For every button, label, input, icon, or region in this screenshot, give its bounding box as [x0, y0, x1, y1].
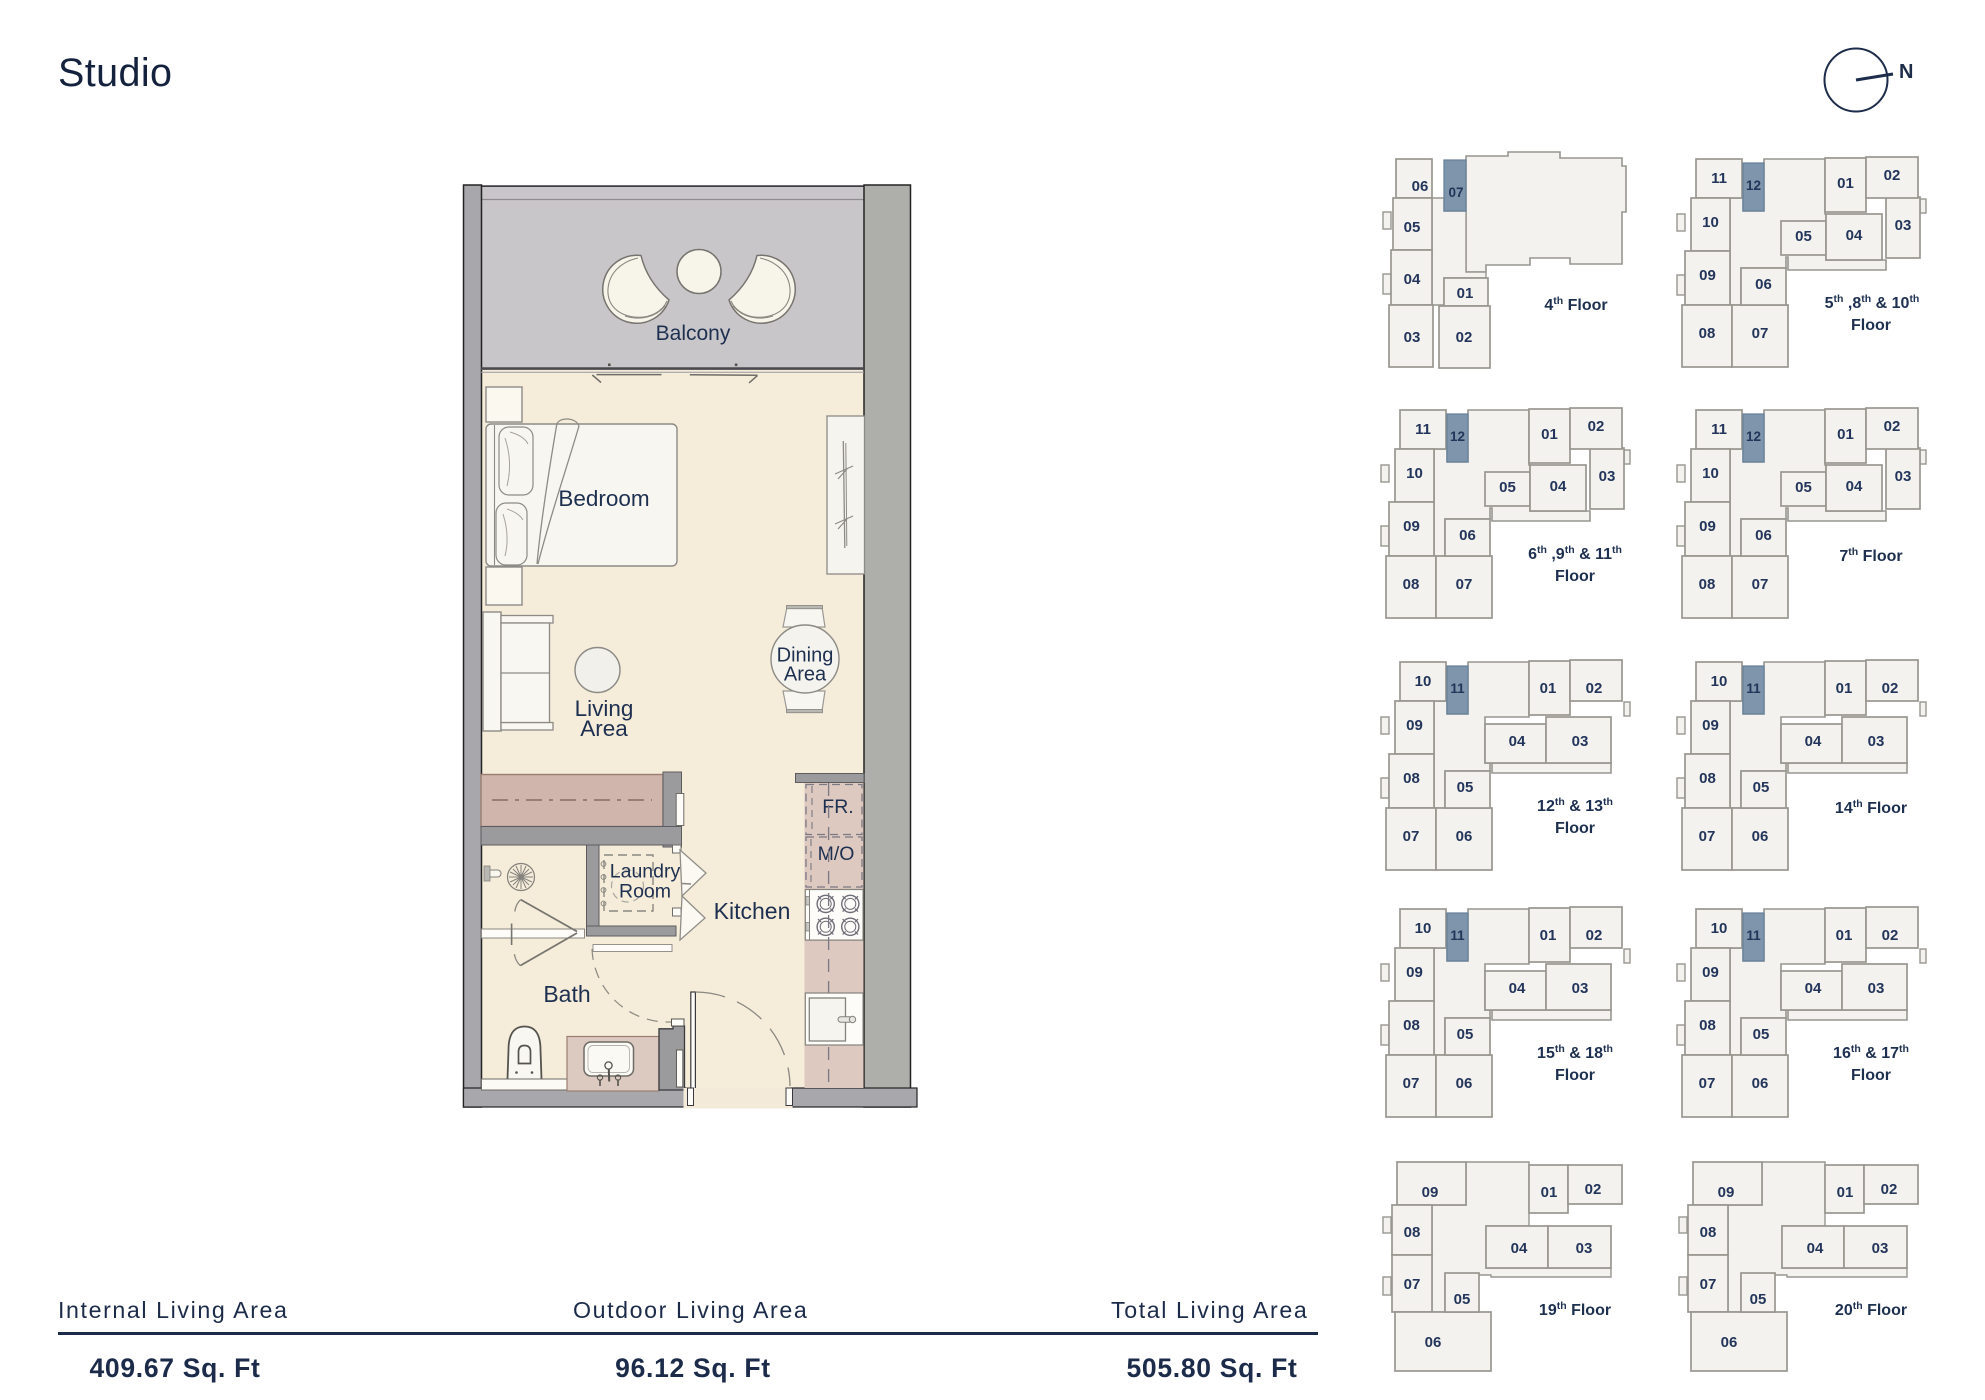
svg-text:06: 06 [1755, 276, 1772, 293]
svg-text:02: 02 [1588, 418, 1605, 435]
svg-text:04: 04 [1509, 733, 1526, 750]
svg-text:Floor: Floor [1555, 1067, 1595, 1084]
svg-text:05: 05 [1750, 1291, 1767, 1308]
svg-text:01: 01 [1541, 426, 1558, 443]
svg-text:05: 05 [1795, 479, 1812, 496]
svg-text:07: 07 [1456, 576, 1473, 593]
svg-text:10: 10 [1711, 673, 1728, 690]
svg-text:N: N [1899, 61, 1913, 83]
svg-text:03: 03 [1895, 217, 1912, 234]
svg-text:6th ,9th & 11th: 6th ,9th & 11th [1528, 544, 1622, 563]
svg-text:10: 10 [1711, 920, 1728, 937]
svg-text:11: 11 [1450, 928, 1465, 943]
svg-text:11: 11 [1746, 681, 1761, 696]
svg-text:10: 10 [1415, 673, 1432, 690]
svg-text:04: 04 [1807, 1240, 1824, 1257]
svg-text:08: 08 [1403, 576, 1420, 593]
svg-text:02: 02 [1586, 680, 1603, 697]
svg-text:10: 10 [1406, 465, 1423, 482]
svg-text:08: 08 [1403, 1017, 1420, 1034]
svg-text:02: 02 [1884, 167, 1901, 184]
svg-text:M/O: M/O [818, 843, 855, 865]
svg-text:02: 02 [1884, 418, 1901, 435]
svg-text:03: 03 [1872, 1240, 1889, 1257]
svg-text:09: 09 [1718, 1184, 1735, 1201]
svg-text:02: 02 [1882, 927, 1899, 944]
svg-text:09: 09 [1699, 518, 1716, 535]
svg-text:07: 07 [1752, 576, 1769, 593]
svg-text:05: 05 [1404, 219, 1421, 236]
svg-text:01: 01 [1836, 927, 1853, 944]
svg-text:03: 03 [1868, 980, 1885, 997]
svg-text:Bedroom: Bedroom [558, 486, 649, 511]
svg-text:07: 07 [1403, 828, 1420, 845]
svg-text:15th & 18th: 15th & 18th [1537, 1043, 1613, 1062]
svg-text:03: 03 [1895, 468, 1912, 485]
svg-text:02: 02 [1456, 329, 1473, 346]
svg-text:06: 06 [1459, 527, 1476, 544]
svg-text:03: 03 [1576, 1240, 1593, 1257]
svg-text:03: 03 [1572, 980, 1589, 997]
svg-text:06: 06 [1752, 828, 1769, 845]
svg-text:06: 06 [1721, 1334, 1738, 1351]
svg-text:07: 07 [1699, 828, 1716, 845]
svg-text:03: 03 [1572, 733, 1589, 750]
svg-text:09: 09 [1699, 267, 1716, 284]
svg-text:10: 10 [1702, 465, 1719, 482]
svg-text:Floor: Floor [1851, 317, 1891, 334]
svg-text:01: 01 [1541, 1184, 1558, 1201]
svg-text:04: 04 [1805, 733, 1822, 750]
svg-text:07: 07 [1699, 1075, 1716, 1092]
svg-text:05: 05 [1457, 779, 1474, 796]
svg-text:10: 10 [1702, 214, 1719, 231]
svg-text:05: 05 [1499, 479, 1516, 496]
svg-text:04: 04 [1509, 980, 1526, 997]
svg-text:11: 11 [1711, 421, 1727, 438]
svg-text:07: 07 [1404, 1276, 1421, 1293]
svg-text:5th ,8th & 10th: 5th ,8th & 10th [1825, 293, 1920, 312]
svg-text:12: 12 [1450, 429, 1465, 444]
svg-text:08: 08 [1699, 770, 1716, 787]
svg-text:02: 02 [1881, 1181, 1898, 1198]
svg-text:12: 12 [1746, 178, 1761, 193]
svg-text:09: 09 [1422, 1184, 1439, 1201]
svg-text:12: 12 [1746, 429, 1761, 444]
svg-text:20th Floor: 20th Floor [1835, 1300, 1907, 1319]
svg-text:09: 09 [1702, 964, 1719, 981]
svg-text:07: 07 [1448, 185, 1463, 200]
svg-text:Floor: Floor [1851, 1067, 1891, 1084]
svg-text:Balcony: Balcony [656, 322, 731, 345]
svg-text:11: 11 [1746, 928, 1761, 943]
svg-text:05: 05 [1795, 228, 1812, 245]
svg-text:08: 08 [1403, 770, 1420, 787]
svg-text:04: 04 [1805, 980, 1822, 997]
svg-text:05: 05 [1753, 779, 1770, 796]
svg-text:08: 08 [1699, 1017, 1716, 1034]
svg-text:10: 10 [1415, 920, 1432, 937]
svg-text:08: 08 [1699, 325, 1716, 342]
svg-text:03: 03 [1599, 468, 1616, 485]
svg-text:09: 09 [1406, 717, 1423, 734]
svg-text:Bath: Bath [543, 981, 590, 1007]
svg-text:11: 11 [1711, 170, 1727, 187]
svg-text:Kitchen: Kitchen [714, 898, 791, 924]
svg-text:01: 01 [1540, 680, 1557, 697]
svg-text:06: 06 [1412, 178, 1429, 195]
svg-text:06: 06 [1456, 1075, 1473, 1092]
svg-text:4th Floor: 4th Floor [1544, 295, 1607, 314]
svg-text:Floor: Floor [1555, 820, 1595, 837]
svg-text:03: 03 [1404, 329, 1421, 346]
svg-text:07: 07 [1403, 1075, 1420, 1092]
svg-text:01: 01 [1836, 680, 1853, 697]
svg-text:04: 04 [1550, 478, 1567, 495]
svg-text:08: 08 [1700, 1224, 1717, 1241]
svg-text:06: 06 [1752, 1075, 1769, 1092]
svg-text:12th & 13th: 12th & 13th [1537, 796, 1613, 815]
svg-text:FR.: FR. [822, 796, 853, 818]
svg-text:06: 06 [1755, 527, 1772, 544]
svg-text:04: 04 [1846, 227, 1863, 244]
svg-text:02: 02 [1585, 1181, 1602, 1198]
svg-text:Area: Area [580, 716, 628, 741]
svg-text:01: 01 [1540, 927, 1557, 944]
svg-text:04: 04 [1404, 271, 1421, 288]
svg-text:07: 07 [1752, 325, 1769, 342]
svg-text:05: 05 [1454, 1291, 1471, 1308]
svg-text:11: 11 [1415, 421, 1431, 438]
svg-text:09: 09 [1406, 964, 1423, 981]
svg-text:Area: Area [784, 664, 827, 686]
svg-text:04: 04 [1846, 478, 1863, 495]
svg-text:11: 11 [1450, 681, 1465, 696]
svg-text:02: 02 [1882, 680, 1899, 697]
svg-text:05: 05 [1457, 1026, 1474, 1043]
svg-text:19th Floor: 19th Floor [1539, 1300, 1611, 1319]
svg-text:01: 01 [1457, 285, 1474, 302]
svg-text:02: 02 [1586, 927, 1603, 944]
svg-text:01: 01 [1837, 175, 1854, 192]
svg-text:Laundry: Laundry [610, 861, 681, 883]
svg-text:09: 09 [1403, 518, 1420, 535]
svg-text:09: 09 [1702, 717, 1719, 734]
svg-text:Floor: Floor [1555, 568, 1595, 585]
svg-text:06: 06 [1425, 1334, 1442, 1351]
svg-text:7th Floor: 7th Floor [1839, 546, 1902, 565]
svg-text:03: 03 [1868, 733, 1885, 750]
svg-text:05: 05 [1753, 1026, 1770, 1043]
svg-text:Room: Room [619, 881, 671, 903]
svg-text:08: 08 [1699, 576, 1716, 593]
svg-text:01: 01 [1837, 426, 1854, 443]
svg-text:08: 08 [1404, 1224, 1421, 1241]
svg-text:16th & 17th: 16th & 17th [1833, 1043, 1909, 1062]
svg-text:14th Floor: 14th Floor [1835, 798, 1907, 817]
svg-text:07: 07 [1700, 1276, 1717, 1293]
svg-text:04: 04 [1511, 1240, 1528, 1257]
svg-text:06: 06 [1456, 828, 1473, 845]
svg-text:01: 01 [1837, 1184, 1854, 1201]
